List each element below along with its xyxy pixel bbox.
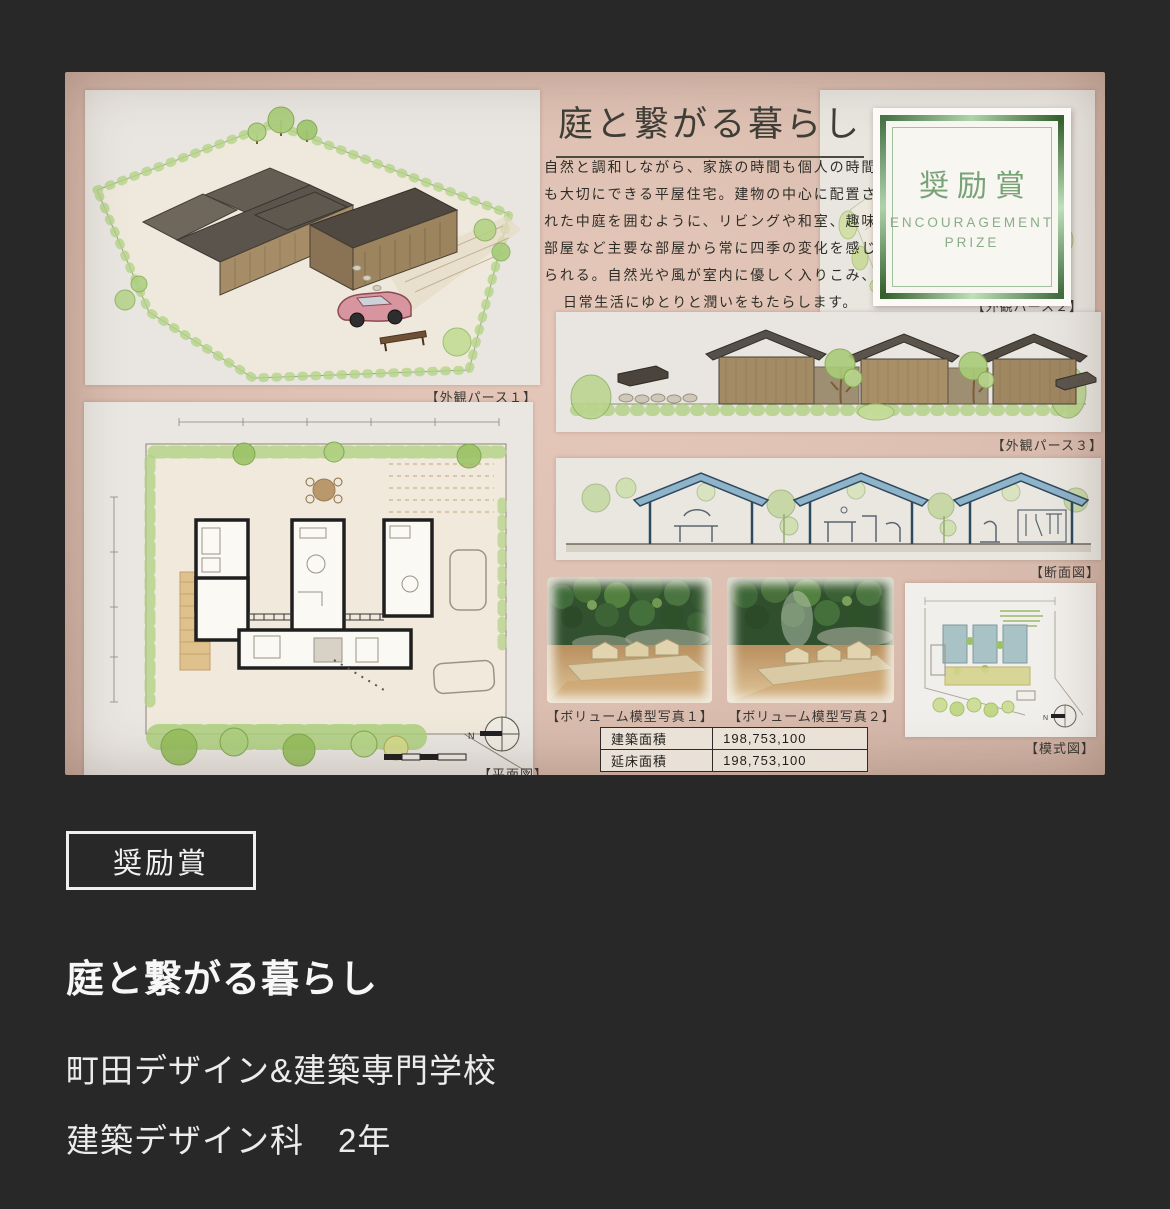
area-table-value: 198,753,100: [713, 728, 868, 750]
entry-title: 庭と繋がる暮らし: [66, 948, 378, 1003]
scale-bar: [384, 754, 466, 760]
panel-schematic-diagram: N: [905, 583, 1096, 737]
area-table-label: 建築面積: [601, 728, 713, 750]
poster-image[interactable]: 【外観パース１】 庭と繋がる暮らし 自然と調和しながら、家族の時間も個人の時間も…: [65, 72, 1105, 775]
panel-floor-plan: N: [84, 402, 533, 775]
model-photo-2-image: [727, 577, 894, 703]
award-badge-subtitle: ENCOURAGEMENT PRIZE: [890, 213, 1054, 254]
section-drawing: [556, 458, 1101, 560]
label-model-photo-2: 【ボリューム模型写真２】: [723, 706, 901, 725]
panel-section-drawing: [556, 458, 1101, 560]
label-floor-plan: 【平面図】: [478, 764, 608, 775]
svg-text:N: N: [468, 731, 475, 741]
label-schematic-diagram: 【模式図】: [995, 738, 1095, 757]
table-row: 延床面積 198,753,100: [601, 750, 868, 772]
award-badge-frame: 奨励賞 ENCOURAGEMENT PRIZE: [880, 115, 1064, 299]
label-section-drawing: 【断面図】: [1000, 562, 1100, 581]
award-label: 奨励賞: [113, 840, 209, 882]
area-table: 建築面積 198,753,100 延床面積 198,753,100: [600, 727, 868, 772]
exterior-perspective-1-drawing: [85, 90, 540, 385]
award-badge-title: 奨励賞: [911, 161, 1033, 205]
entry-grade: 建築デザイン科 2年: [66, 1114, 391, 1162]
model-photo-2: [727, 577, 894, 703]
svg-text:N: N: [1043, 715, 1048, 722]
label-model-photo-1: 【ボリューム模型写真１】: [543, 706, 717, 725]
label-exterior-perspective-3: 【外観パース３】: [955, 435, 1103, 454]
poster-description: 自然と調和しながら、家族の時間も個人の時間も大切にできる平屋住宅。建物の中心に配…: [544, 154, 877, 316]
floor-plan-drawing: N: [84, 402, 533, 775]
award-badge: 奨励賞 ENCOURAGEMENT PRIZE: [873, 108, 1071, 306]
exterior-perspective-3-drawing: [556, 312, 1101, 432]
model-photo-1: [547, 577, 712, 703]
page: 【外観パース１】 庭と繋がる暮らし 自然と調和しながら、家族の時間も個人の時間も…: [0, 0, 1170, 1209]
panel-exterior-perspective-1: [85, 90, 540, 385]
area-table-value: 198,753,100: [713, 750, 868, 772]
award-label-box: 奨励賞: [66, 831, 256, 890]
area-table-label: 延床面積: [601, 750, 713, 772]
panel-exterior-perspective-3: [556, 312, 1101, 432]
poster-title: 庭と繋がる暮らし: [545, 96, 875, 158]
entry-school: 町田デザイン&建築専門学校: [66, 1044, 497, 1092]
model-photo-1-image: [547, 577, 712, 703]
schematic-diagram-drawing: N: [905, 583, 1096, 737]
table-row: 建築面積 198,753,100: [601, 728, 868, 750]
